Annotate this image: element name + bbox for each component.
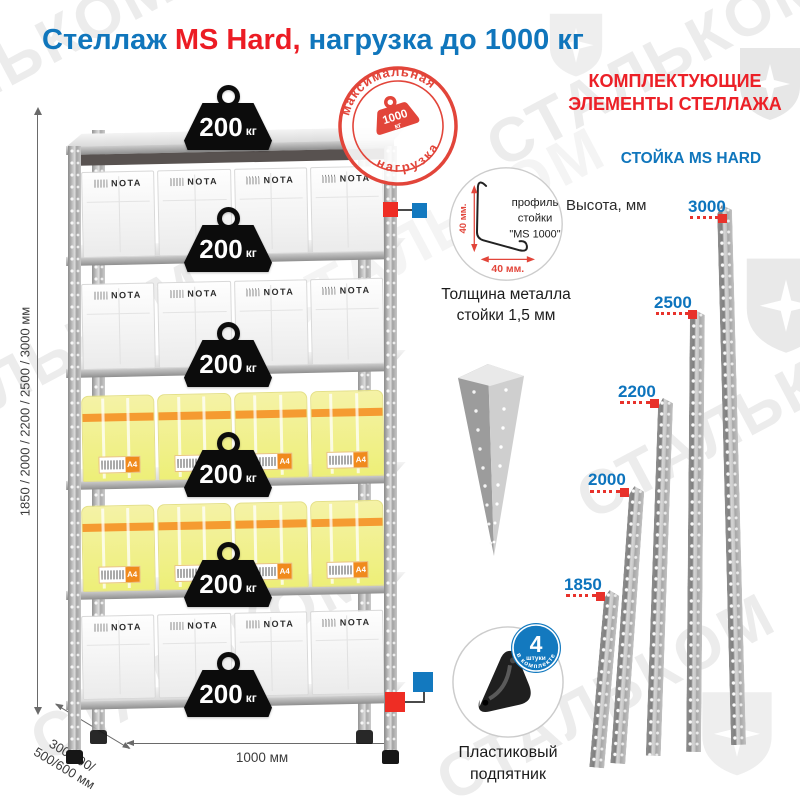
height-axis-label: Высота, мм <box>566 197 646 214</box>
weight-unit: кг <box>246 361 257 375</box>
product-box-white: NOTA <box>81 170 156 258</box>
paper-format-label: A4 <box>125 567 139 582</box>
profile-label-line2: стойки <box>518 212 553 224</box>
components-heading: КОМПЛЕКТУЮЩИЕ ЭЛЕМЕНТЫ СТЕЛЛАЖА <box>556 70 794 116</box>
title-prefix: Стеллаж <box>42 24 167 56</box>
box-brand-label: NOTA <box>263 175 294 186</box>
barcode-icon <box>323 175 336 183</box>
box-brand-label: NOTA <box>111 622 142 633</box>
weight-badge: 200кг <box>184 652 272 716</box>
corner-post-image <box>444 358 540 562</box>
max-load-stamp: максимальная нагрузка 1000 кг <box>336 64 460 188</box>
shield-watermark-icon <box>744 256 800 358</box>
arrow-up-icon <box>34 107 42 115</box>
paper-format-label: A4 <box>277 454 291 469</box>
leader-line-1850 <box>566 594 596 597</box>
profile-dim-vertical: 40 мм. <box>458 204 469 234</box>
barcode-icon <box>330 565 353 574</box>
components-heading-line2: ЭЛЕМЕНТЫ СТЕЛЛАЖА <box>556 93 794 116</box>
product-box-paper: A4 <box>310 500 385 588</box>
profile-label-line1: профиль <box>512 197 559 209</box>
product-box-white: NOTA <box>310 278 385 366</box>
product-box-white: NOTA <box>81 282 156 370</box>
box-brand-label: NOTA <box>340 285 371 296</box>
thickness-caption-line1: Толщина металла <box>416 284 596 305</box>
box-brand-label: NOTA <box>187 620 218 631</box>
barcode-icon <box>246 620 259 628</box>
box-brand-label: NOTA <box>111 178 142 189</box>
shelving-unit: NOTA NOTA NOTA NOTA NOTA NOTA NOTA NOTA … <box>58 106 408 786</box>
weight-value: 200 <box>199 571 242 597</box>
paper-format-label: A4 <box>354 562 368 577</box>
weight-value: 200 <box>199 114 242 140</box>
barcode-icon <box>170 290 183 298</box>
weight-value: 200 <box>199 681 242 707</box>
components-heading-line1: КОМПЛЕКТУЮЩИЕ <box>556 70 794 93</box>
weight-badge: 200кг <box>184 207 272 271</box>
weight-value: 200 <box>199 461 242 487</box>
weight-value: 200 <box>199 351 242 377</box>
barcode-icon <box>94 623 107 631</box>
callout-marker-red <box>383 202 398 217</box>
product-box-paper: A4 <box>81 504 156 592</box>
barcode-icon <box>323 619 336 627</box>
leader-line-2000 <box>590 490 620 493</box>
barcode-icon <box>170 622 183 630</box>
barcode-icon <box>101 460 124 469</box>
page-title: Стеллаж MS Hard, нагрузка до 1000 кг <box>42 24 584 57</box>
weight-unit: кг <box>246 691 257 705</box>
callout-line <box>405 701 425 703</box>
paper-format-label: A4 <box>125 457 139 472</box>
plastic-foot-caption: Пластиковый подпятник <box>418 742 598 786</box>
leader-line-2500 <box>656 312 688 315</box>
profile-dim-horizontal: 40 мм. <box>491 264 524 275</box>
weight-value: 200 <box>199 236 242 262</box>
box-brand-label: NOTA <box>340 617 371 628</box>
quantity-badge: 4 штуки в комплекте <box>510 622 562 674</box>
leader-line-3000 <box>690 216 718 219</box>
box-brand-label: NOTA <box>187 176 218 187</box>
weight-unit: кг <box>246 124 257 138</box>
product-box-paper: A4 <box>81 394 156 482</box>
barcode-icon <box>101 570 124 579</box>
plastic-foot-caption-line1: Пластиковый <box>418 742 598 764</box>
weight-unit: кг <box>246 471 257 485</box>
callout-marker-red <box>385 692 405 712</box>
quantity-number: 4 <box>530 631 543 657</box>
height-dimension-line <box>37 114 38 708</box>
product-box-white: NOTA <box>81 614 156 700</box>
thickness-caption: Толщина металла стойки 1,5 мм <box>416 284 596 326</box>
height-dimension-label: 1850 / 2000 / 2200 / 2500 / 3000 мм <box>18 262 35 562</box>
weight-badge: 200кг <box>184 322 272 386</box>
paper-format-label: A4 <box>354 452 368 467</box>
barcode-icon <box>94 179 107 187</box>
catalog-page: СТАЛЬКОМ СТАЛЬКОМ СТАЛЬКОМ СТАЛЬКОМ СТАЛ… <box>0 0 800 800</box>
barcode-icon <box>246 288 259 296</box>
quantity-word: штуки <box>526 655 546 662</box>
plastic-foot-caption-line2: подпятник <box>418 764 598 786</box>
barcode-icon <box>330 455 353 464</box>
barcode-icon <box>94 291 107 299</box>
arrow-down-icon <box>34 707 42 715</box>
weight-badge: 200кг <box>184 85 272 149</box>
leader-line-2200 <box>620 401 650 404</box>
box-brand-label: NOTA <box>263 619 294 630</box>
product-box-paper: A4 <box>310 390 385 478</box>
profile-label-line3: "MS 1000" <box>509 229 560 241</box>
paper-format-label: A4 <box>277 564 291 579</box>
barcode-icon <box>323 287 336 295</box>
thickness-caption-line2: стойки 1,5 мм <box>416 305 596 326</box>
callout-marker-blue <box>413 672 433 692</box>
shelf-post-front-left <box>68 146 81 750</box>
post-height-label-2500: 2500 <box>654 293 692 313</box>
box-brand-label: NOTA <box>187 288 218 299</box>
barcode-icon <box>170 178 183 186</box>
title-suffix: нагрузка до 1000 кг <box>309 24 584 56</box>
product-box-white: NOTA <box>310 610 385 696</box>
components-subheading: СТОЙКА MS HARD <box>600 150 782 168</box>
title-model: MS Hard, <box>175 24 301 56</box>
callout-marker-blue <box>412 203 427 218</box>
box-brand-label: NOTA <box>111 290 142 301</box>
shelf-post-front-right <box>384 146 397 750</box>
weight-badge: 200кг <box>184 542 272 606</box>
weight-unit: кг <box>246 246 257 260</box>
weight-unit: кг <box>246 581 257 595</box>
post-profile-detail: 40 мм. 40 мм. профиль стойки "MS 1000" <box>448 166 564 282</box>
barcode-icon <box>246 176 259 184</box>
box-brand-label: NOTA <box>263 287 294 298</box>
weight-badge: 200кг <box>184 432 272 496</box>
